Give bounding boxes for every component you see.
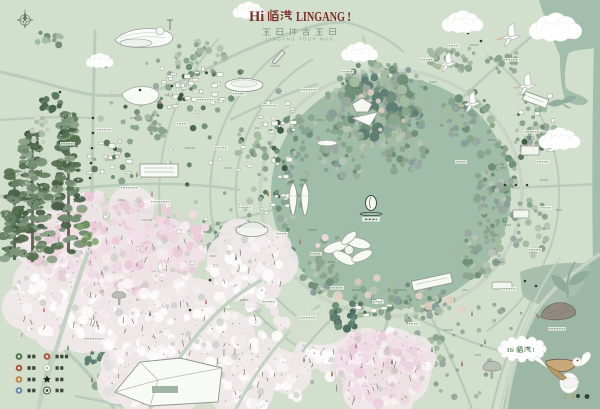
svg-text:!: ! [533,347,535,354]
svg-text:LINGANG TOUR MAP: LINGANG TOUR MAP [266,37,334,42]
svg-text:!: ! [347,9,351,24]
svg-text:Hi: Hi [249,9,264,25]
svg-text:Hi: Hi [507,347,514,354]
svg-text:LINGANG: LINGANG [296,10,345,25]
